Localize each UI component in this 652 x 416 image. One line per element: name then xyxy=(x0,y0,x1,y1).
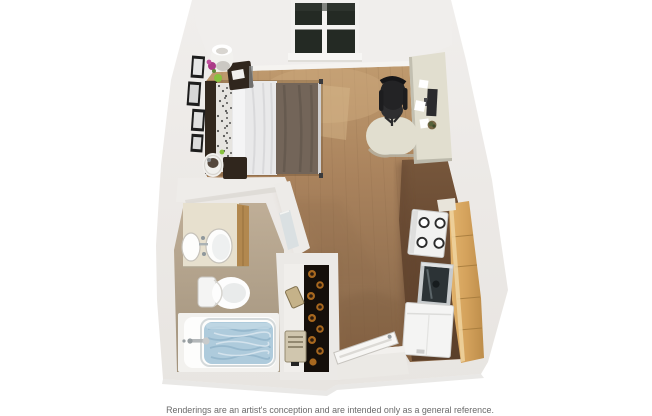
svg-text:Renderings are an artist's con: Renderings are an artist's conception an… xyxy=(166,405,494,415)
